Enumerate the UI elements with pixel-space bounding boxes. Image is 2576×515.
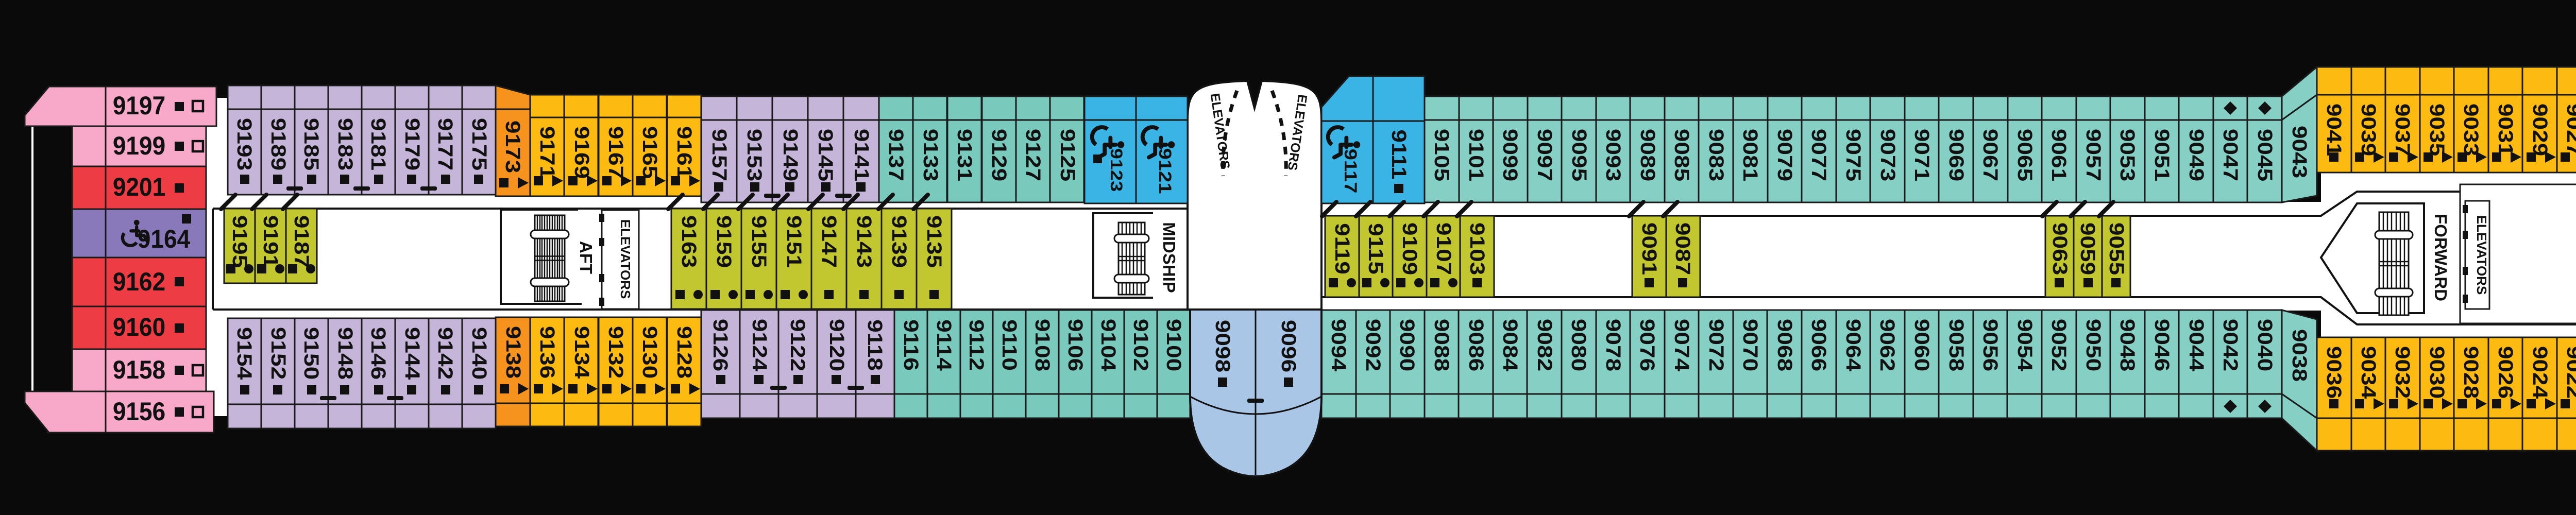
svg-text:MIDSHIP: MIDSHIP	[1160, 222, 1179, 293]
svg-text:9109: 9109	[1398, 222, 1421, 275]
svg-text:9155: 9155	[748, 215, 770, 268]
svg-text:9088: 9088	[1430, 319, 1453, 371]
svg-text:9053: 9053	[2116, 129, 2139, 181]
svg-text:9125: 9125	[1056, 129, 1079, 181]
svg-text:9105: 9105	[1430, 129, 1453, 181]
svg-text:9067: 9067	[1979, 129, 2002, 181]
svg-text:9052: 9052	[2047, 319, 2070, 371]
svg-text:9028: 9028	[2460, 346, 2482, 399]
svg-text:9119: 9119	[1331, 223, 1353, 274]
svg-text:9049: 9049	[2185, 129, 2208, 181]
svg-text:9123: 9123	[1107, 148, 1126, 192]
svg-text:9136: 9136	[536, 326, 558, 379]
svg-text:ELEVATORS: ELEVATORS	[2474, 215, 2489, 295]
svg-text:9120: 9120	[825, 319, 848, 371]
svg-text:AFT: AFT	[577, 241, 596, 274]
svg-text:9090: 9090	[1396, 319, 1418, 371]
svg-text:9140: 9140	[468, 327, 490, 380]
svg-text:9191: 9191	[259, 215, 282, 268]
svg-text:9162: 9162	[113, 268, 165, 296]
svg-text:9154: 9154	[233, 327, 256, 380]
svg-text:9066: 9066	[1807, 319, 1830, 371]
svg-text:9081: 9081	[1739, 129, 1761, 181]
svg-text:9152: 9152	[267, 327, 290, 380]
svg-text:9158: 9158	[113, 356, 165, 384]
svg-text:9091: 9091	[1638, 222, 1660, 275]
svg-text:9201: 9201	[113, 173, 165, 201]
svg-text:9080: 9080	[1567, 319, 1590, 371]
svg-text:9027: 9027	[2563, 104, 2576, 156]
svg-text:9153: 9153	[743, 129, 766, 181]
svg-text:9183: 9183	[334, 118, 357, 170]
svg-text:9077: 9077	[1807, 129, 1830, 181]
svg-text:9037: 9037	[2391, 104, 2414, 156]
svg-text:9117: 9117	[1341, 149, 1361, 194]
svg-text:9175: 9175	[468, 118, 490, 170]
svg-text:9171: 9171	[536, 126, 558, 179]
svg-text:9047: 9047	[2219, 129, 2242, 181]
svg-text:9048: 9048	[2116, 319, 2139, 371]
svg-text:9046: 9046	[2150, 319, 2173, 371]
svg-text:9029: 9029	[2529, 104, 2551, 156]
svg-text:9169: 9169	[570, 126, 593, 179]
svg-text:9092: 9092	[1362, 319, 1384, 371]
svg-text:9042: 9042	[2219, 319, 2242, 371]
svg-text:9087: 9087	[1671, 222, 1694, 275]
svg-text:9197: 9197	[113, 92, 165, 120]
svg-text:9070: 9070	[1739, 319, 1761, 371]
svg-text:9065: 9065	[2013, 129, 2036, 181]
svg-text:9114: 9114	[933, 319, 955, 371]
svg-text:9097: 9097	[1533, 129, 1556, 181]
svg-text:9181: 9181	[367, 118, 389, 170]
svg-text:9032: 9032	[2391, 346, 2414, 399]
svg-text:9104: 9104	[1097, 319, 1120, 371]
svg-text:9193: 9193	[233, 118, 256, 170]
svg-text:9115: 9115	[1364, 223, 1387, 274]
svg-text:9083: 9083	[1705, 129, 1727, 181]
svg-text:9156: 9156	[113, 398, 165, 426]
svg-text:9141: 9141	[850, 129, 873, 181]
svg-text:9179: 9179	[401, 118, 423, 170]
svg-text:9160: 9160	[113, 313, 165, 341]
svg-text:9051: 9051	[2150, 129, 2173, 181]
svg-text:9059: 9059	[2076, 222, 2099, 275]
svg-text:9138: 9138	[502, 326, 524, 379]
svg-text:9139: 9139	[888, 215, 910, 268]
svg-text:9130: 9130	[638, 326, 661, 379]
svg-text:9106: 9106	[1064, 319, 1087, 371]
svg-text:9185: 9185	[300, 118, 323, 170]
svg-text:9079: 9079	[1773, 129, 1796, 181]
svg-text:9064: 9064	[1842, 319, 1865, 371]
svg-text:9148: 9148	[334, 327, 357, 380]
svg-text:9101: 9101	[1465, 129, 1487, 181]
svg-text:9072: 9072	[1705, 319, 1727, 371]
svg-text:9040: 9040	[2253, 319, 2276, 371]
svg-text:9157: 9157	[708, 129, 731, 181]
svg-text:9024: 9024	[2529, 346, 2551, 399]
svg-text:9073: 9073	[1876, 129, 1899, 181]
svg-text:9033: 9033	[2460, 104, 2482, 156]
svg-text:9058: 9058	[1945, 319, 1968, 371]
svg-text:9085: 9085	[1670, 129, 1693, 181]
svg-text:9144: 9144	[401, 327, 423, 380]
svg-text:FORWARD: FORWARD	[2431, 214, 2450, 301]
svg-text:9036: 9036	[2323, 346, 2345, 399]
svg-text:9147: 9147	[818, 215, 840, 268]
svg-text:9078: 9078	[1602, 319, 1624, 371]
svg-text:9039: 9039	[2357, 104, 2380, 156]
svg-text:9103: 9103	[1466, 222, 1488, 275]
svg-text:9082: 9082	[1533, 319, 1556, 371]
svg-text:9076: 9076	[1636, 319, 1658, 371]
svg-text:9056: 9056	[1979, 319, 2002, 371]
svg-text:9071: 9071	[1910, 129, 1933, 181]
svg-text:9086: 9086	[1465, 319, 1487, 371]
svg-text:9054: 9054	[2013, 319, 2036, 371]
svg-text:9084: 9084	[1499, 319, 1521, 371]
svg-text:9142: 9142	[434, 327, 456, 380]
svg-text:9094: 9094	[1327, 319, 1350, 371]
svg-text:9122: 9122	[786, 319, 809, 371]
svg-text:9089: 9089	[1636, 129, 1659, 181]
svg-text:9121: 9121	[1156, 148, 1176, 194]
svg-text:9145: 9145	[814, 129, 837, 181]
svg-text:9149: 9149	[779, 129, 802, 181]
svg-text:9045: 9045	[2253, 129, 2276, 181]
svg-text:9068: 9068	[1773, 319, 1796, 371]
svg-text:9061: 9061	[2047, 129, 2070, 181]
svg-text:9095: 9095	[1568, 129, 1590, 181]
svg-text:9195: 9195	[228, 215, 251, 268]
svg-text:9041: 9041	[2323, 104, 2345, 156]
svg-text:9107: 9107	[1432, 222, 1455, 275]
svg-text:9133: 9133	[919, 129, 942, 181]
svg-text:9060: 9060	[1910, 319, 1933, 371]
svg-text:9150: 9150	[300, 327, 323, 380]
svg-text:ELEVATORS: ELEVATORS	[618, 219, 633, 299]
svg-text:9161: 9161	[673, 126, 696, 179]
svg-text:9128: 9128	[673, 326, 696, 379]
svg-text:9069: 9069	[1945, 129, 1968, 181]
svg-text:9137: 9137	[885, 129, 907, 181]
svg-text:9177: 9177	[434, 118, 456, 170]
svg-text:9135: 9135	[923, 215, 945, 268]
svg-text:9044: 9044	[2185, 319, 2208, 371]
svg-text:9098: 9098	[1211, 320, 1234, 372]
svg-text:9063: 9063	[2048, 222, 2071, 275]
svg-text:9026: 9026	[2494, 346, 2517, 399]
svg-text:9075: 9075	[1842, 129, 1865, 181]
svg-text:9035: 9035	[2426, 104, 2448, 156]
svg-text:9173: 9173	[501, 121, 524, 173]
svg-text:9199: 9199	[113, 132, 165, 160]
svg-text:9129: 9129	[988, 129, 1010, 181]
svg-text:9102: 9102	[1129, 319, 1152, 371]
svg-text:9043: 9043	[2288, 126, 2311, 178]
svg-text:9099: 9099	[1499, 129, 1521, 181]
svg-text:9111: 9111	[1387, 129, 1410, 179]
svg-text:9110: 9110	[998, 319, 1021, 371]
svg-text:9118: 9118	[863, 319, 886, 371]
svg-text:9050: 9050	[2082, 319, 2105, 371]
svg-text:9159: 9159	[713, 215, 735, 268]
svg-text:9132: 9132	[604, 326, 627, 379]
svg-text:9055: 9055	[2105, 222, 2128, 275]
svg-text:9116: 9116	[900, 319, 922, 371]
svg-text:9096: 9096	[1277, 320, 1300, 372]
svg-text:9165: 9165	[638, 126, 661, 179]
svg-text:9151: 9151	[783, 215, 805, 268]
svg-text:9022: 9022	[2563, 346, 2576, 399]
svg-text:9031: 9031	[2494, 104, 2517, 156]
svg-text:9143: 9143	[853, 215, 875, 268]
svg-text:9038: 9038	[2288, 329, 2311, 382]
svg-text:9030: 9030	[2426, 346, 2448, 399]
svg-text:9062: 9062	[1876, 319, 1899, 371]
svg-text:9034: 9034	[2357, 346, 2380, 399]
svg-text:9100: 9100	[1162, 319, 1185, 371]
svg-text:9189: 9189	[267, 118, 290, 170]
svg-text:9187: 9187	[290, 215, 313, 268]
svg-text:9167: 9167	[604, 126, 627, 179]
svg-text:9057: 9057	[2082, 129, 2105, 181]
svg-text:9093: 9093	[1602, 129, 1624, 181]
svg-text:9146: 9146	[367, 327, 389, 380]
svg-text:9112: 9112	[965, 319, 988, 371]
svg-text:9127: 9127	[1022, 129, 1044, 181]
svg-text:9124: 9124	[748, 319, 771, 371]
svg-text:9074: 9074	[1670, 319, 1693, 371]
svg-text:9134: 9134	[570, 326, 593, 379]
svg-text:9126: 9126	[709, 319, 732, 371]
svg-text:9163: 9163	[677, 215, 700, 268]
svg-text:9131: 9131	[953, 129, 976, 181]
svg-text:9108: 9108	[1031, 319, 1054, 371]
